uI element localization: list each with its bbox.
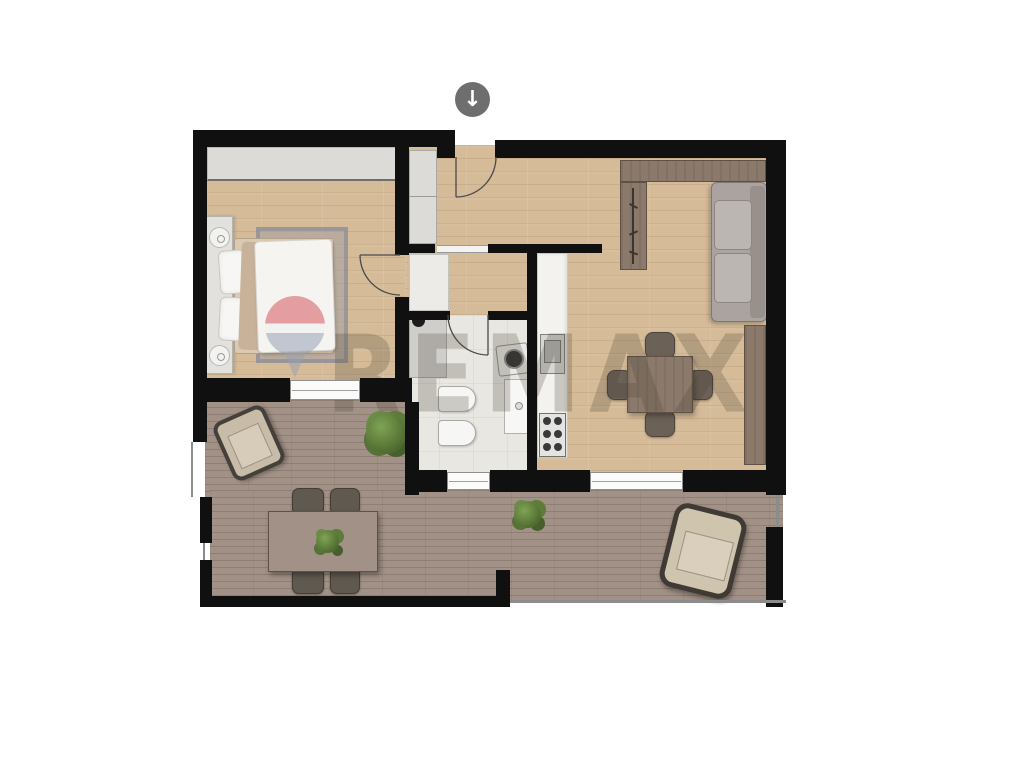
entrance-door-arc: [456, 157, 496, 197]
bathroom-door-arc: [448, 315, 488, 355]
door-swing-arcs: [0, 0, 1024, 768]
bedroom-door-arc: [360, 255, 400, 295]
floorplan-canvas: REMAX ↓: [0, 0, 1024, 768]
entrance-marker: ↓: [455, 82, 490, 117]
down-arrow-icon: ↓: [463, 87, 481, 112]
